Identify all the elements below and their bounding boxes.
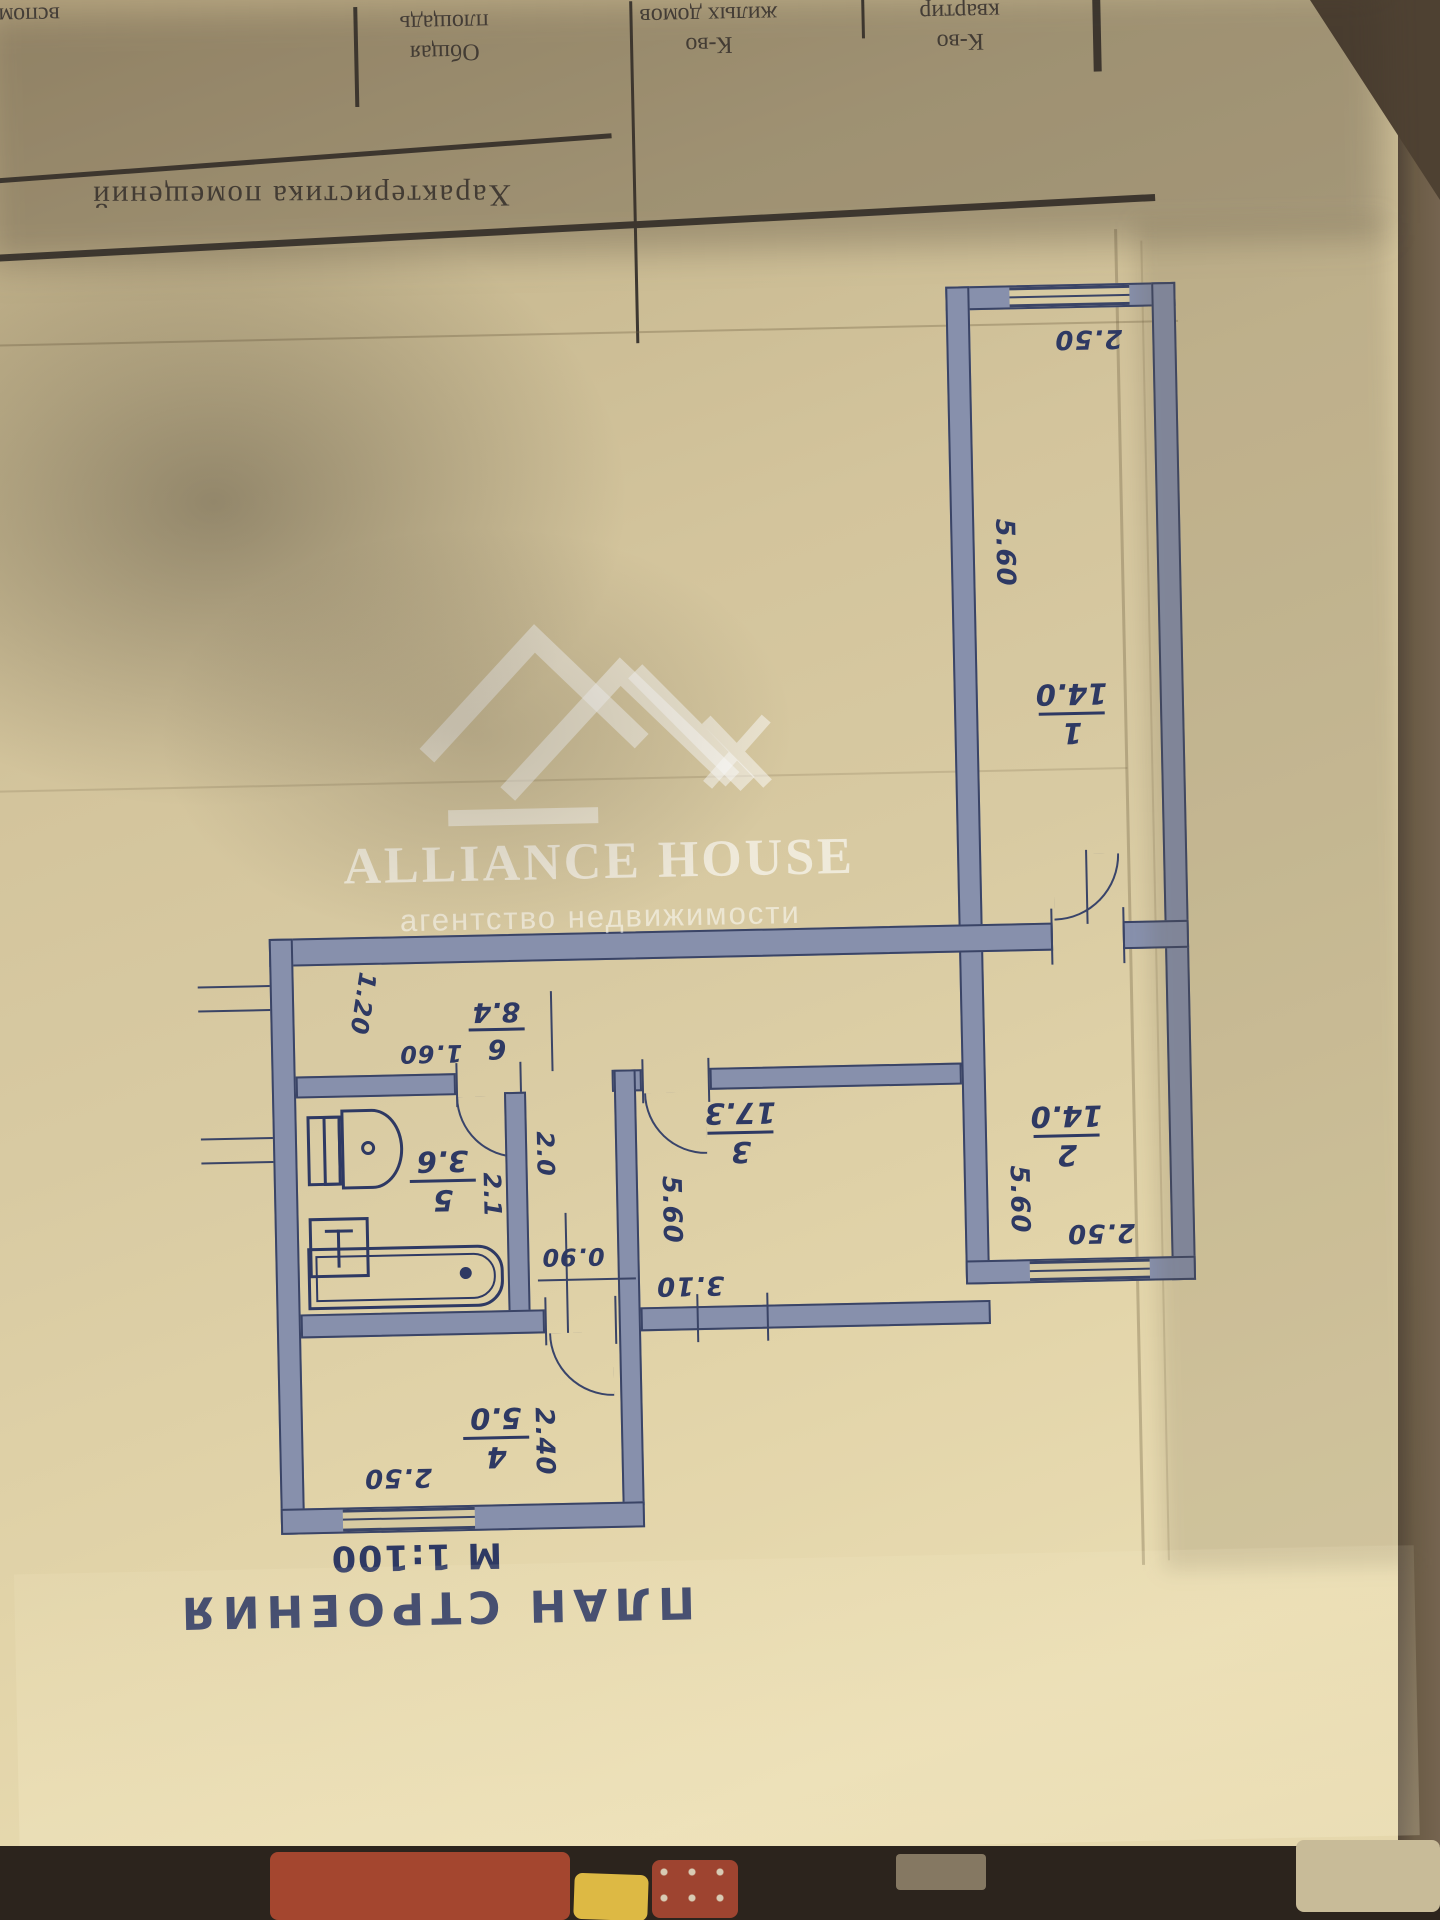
dim-room3-width: 3.10: [656, 1270, 725, 1301]
room-1-label: 1 14.0: [1035, 677, 1108, 748]
table-divider: [353, 7, 359, 107]
wall-right-block-left: [945, 286, 990, 1284]
door-tick: [614, 1296, 617, 1344]
wall-left-exterior: [269, 939, 305, 1535]
floor-paper-scrap: [896, 1854, 986, 1890]
window-tick: [201, 1137, 273, 1141]
dim-bath-width: 2.1: [478, 1172, 507, 1229]
wall-main-horizontal: [1123, 920, 1190, 949]
table-divider: [629, 1, 639, 343]
paper-crease: [1114, 229, 1145, 1565]
window-tick: [198, 1009, 270, 1013]
door-swing: [549, 1332, 614, 1397]
table-divider: [1092, 0, 1102, 72]
wall-hall-bottom: [296, 1073, 456, 1098]
dim-bath-wall: 2.0: [531, 1131, 560, 1188]
plan-scale: М 1:100: [329, 1534, 502, 1578]
dim-room3-depth: 5.60: [656, 1175, 687, 1246]
wall-right-block-right: [1151, 282, 1196, 1280]
table-col-aux: вспомог.: [0, 0, 60, 31]
wall-room3-left: [614, 1069, 645, 1505]
carpet-pattern: [652, 1860, 738, 1918]
dim-room1-depth: 5.60: [989, 518, 1020, 589]
table-col-homes: К-во жилых домов: [639, 0, 778, 61]
wall-hall-bottom: [710, 1063, 962, 1090]
sink-tap-icon: [325, 1229, 353, 1233]
door-swing: [644, 1092, 707, 1155]
wall-main-horizontal: [269, 923, 1053, 967]
dim-line: [565, 1213, 570, 1333]
dim-room2-depth: 5.60: [1004, 1165, 1035, 1236]
carpet-pattern: [270, 1852, 570, 1920]
door-tick: [544, 1297, 547, 1345]
photo-background-floor: [0, 1846, 1440, 1920]
room-5-label: 5 3.6: [409, 1145, 476, 1216]
table-col-total-area: Общая площадь: [399, 6, 489, 68]
dim-room4-depth: 2.40: [529, 1407, 560, 1474]
room-4-label: 4 5.0: [462, 1402, 529, 1473]
sticky-note: [573, 1873, 649, 1920]
dim-room2-width: 2.50: [1067, 1217, 1136, 1248]
window-room2: [1030, 1259, 1150, 1282]
room-6-label: 6 8.4: [468, 996, 525, 1063]
room-2-label: 2 14.0: [1030, 1100, 1103, 1171]
door-tick: [1050, 909, 1053, 965]
dim-door: 0.90: [541, 1242, 605, 1271]
wall-bathroom-right: [504, 1092, 531, 1314]
window-kitchen: [343, 1507, 475, 1532]
dim-line: [550, 991, 554, 1071]
toilet-tank-icon: [322, 1116, 341, 1186]
room-3-label: 3 17.3: [704, 1096, 777, 1167]
dim-room4-width: 2.50: [364, 1462, 433, 1493]
table-col-flats: К-во квартир: [919, 0, 1001, 57]
dim-hall-seg: 1.60: [399, 1039, 463, 1068]
watermark-brand: ALLIANCE HOUSE: [339, 827, 860, 897]
dim-room1-width: 2.50: [1054, 323, 1123, 354]
document-photo: вспомог. Общая площадь К-во жилых домов …: [0, 0, 1440, 1920]
plan-title: ПЛАН СТРОЕНИЯ: [174, 1576, 695, 1638]
window-tick: [201, 1161, 273, 1165]
door-tick: [707, 1058, 710, 1102]
window-tick: [198, 985, 270, 989]
watermark: ALLIANCE HOUSE агентство недвижимости: [334, 597, 861, 941]
floor-paper-scrap: [1296, 1840, 1440, 1912]
table-divider: [861, 0, 865, 38]
dim-hall-depth: 1.20: [345, 970, 382, 1036]
wall-room3-bottom: [641, 1300, 991, 1331]
alliance-house-logo-icon: [384, 598, 809, 837]
window-room1: [1009, 285, 1129, 308]
wall-kitchen-top: [301, 1309, 545, 1338]
paper-crease: [0, 320, 1178, 347]
section-title: Характеристика помещений: [91, 175, 511, 215]
